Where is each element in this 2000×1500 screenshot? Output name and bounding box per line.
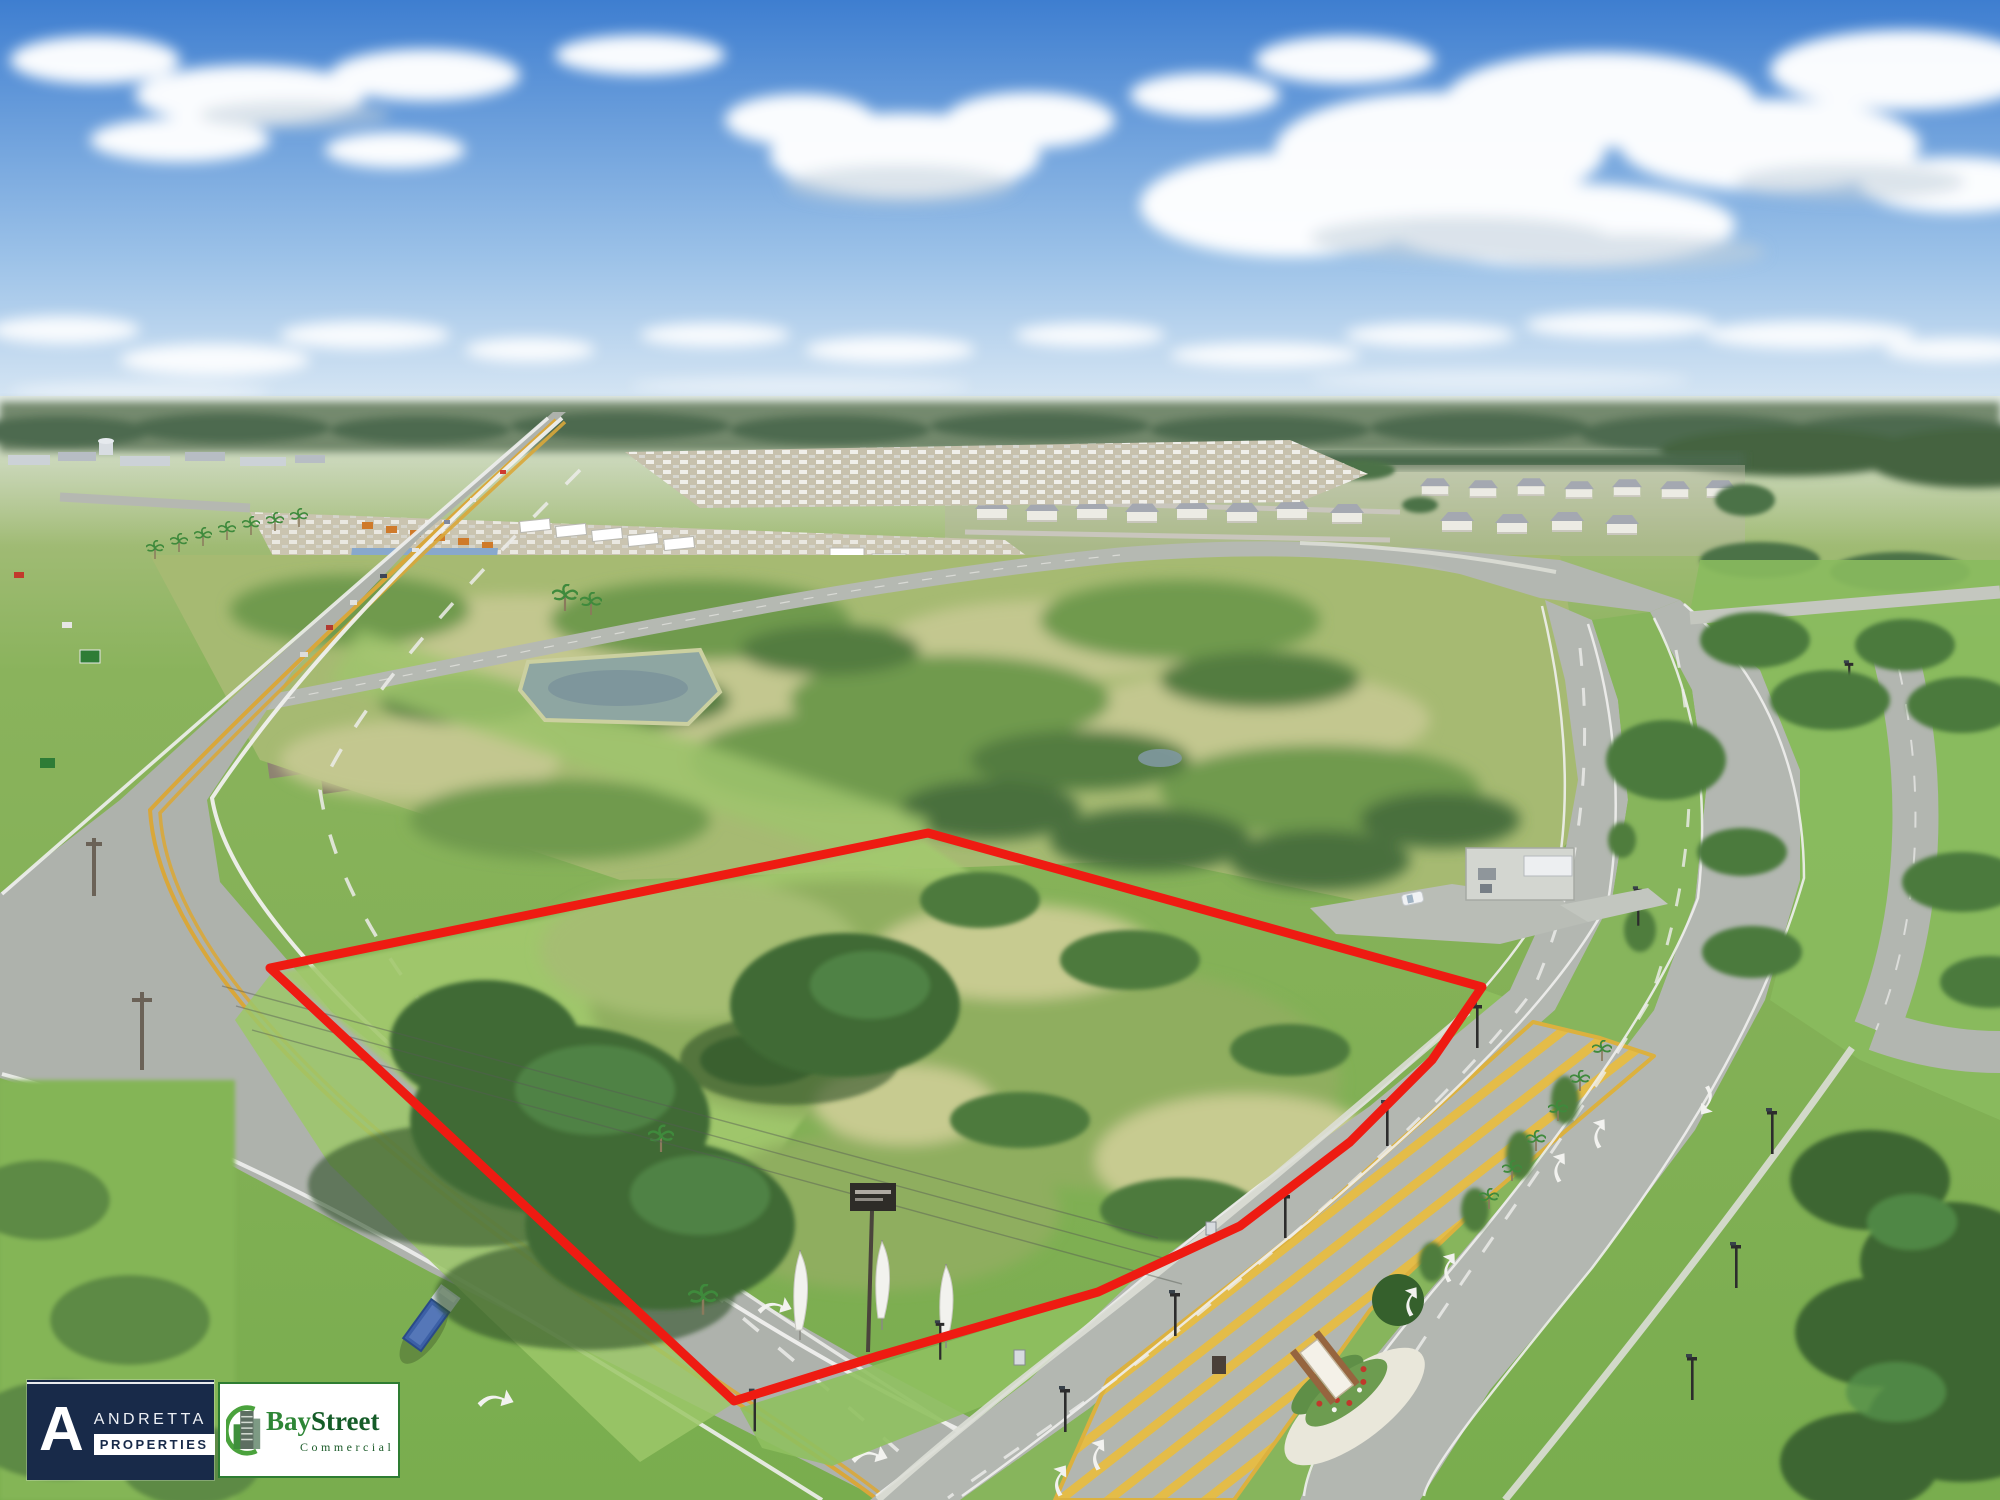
- retention-pond: [520, 650, 720, 724]
- aerial-photo-canvas: [0, 0, 2000, 1500]
- baystreet-name: BayStreet: [266, 1408, 394, 1435]
- andretta-name: ANDRETTA: [94, 1411, 215, 1429]
- building-icon: [226, 1400, 264, 1460]
- baystreet-word1: Bay: [266, 1406, 311, 1436]
- water-tower: [98, 438, 114, 455]
- baystreet-word2: Street: [311, 1406, 379, 1436]
- small-pond: [1138, 749, 1182, 767]
- logo-andretta-topline: [27, 1382, 214, 1384]
- aerial-listing-photo: A ANDRETTA PROPERTIES BayStreet Commerci…: [0, 0, 2000, 1500]
- storage-container: [1524, 856, 1572, 876]
- andretta-monogram: A: [39, 1402, 84, 1458]
- logo-baystreet-commercial: BayStreet Commercial: [218, 1382, 400, 1478]
- logo-andretta-properties: A ANDRETTA PROPERTIES: [27, 1380, 214, 1480]
- andretta-division: PROPERTIES: [94, 1434, 215, 1455]
- baystreet-division: Commercial: [300, 1441, 394, 1453]
